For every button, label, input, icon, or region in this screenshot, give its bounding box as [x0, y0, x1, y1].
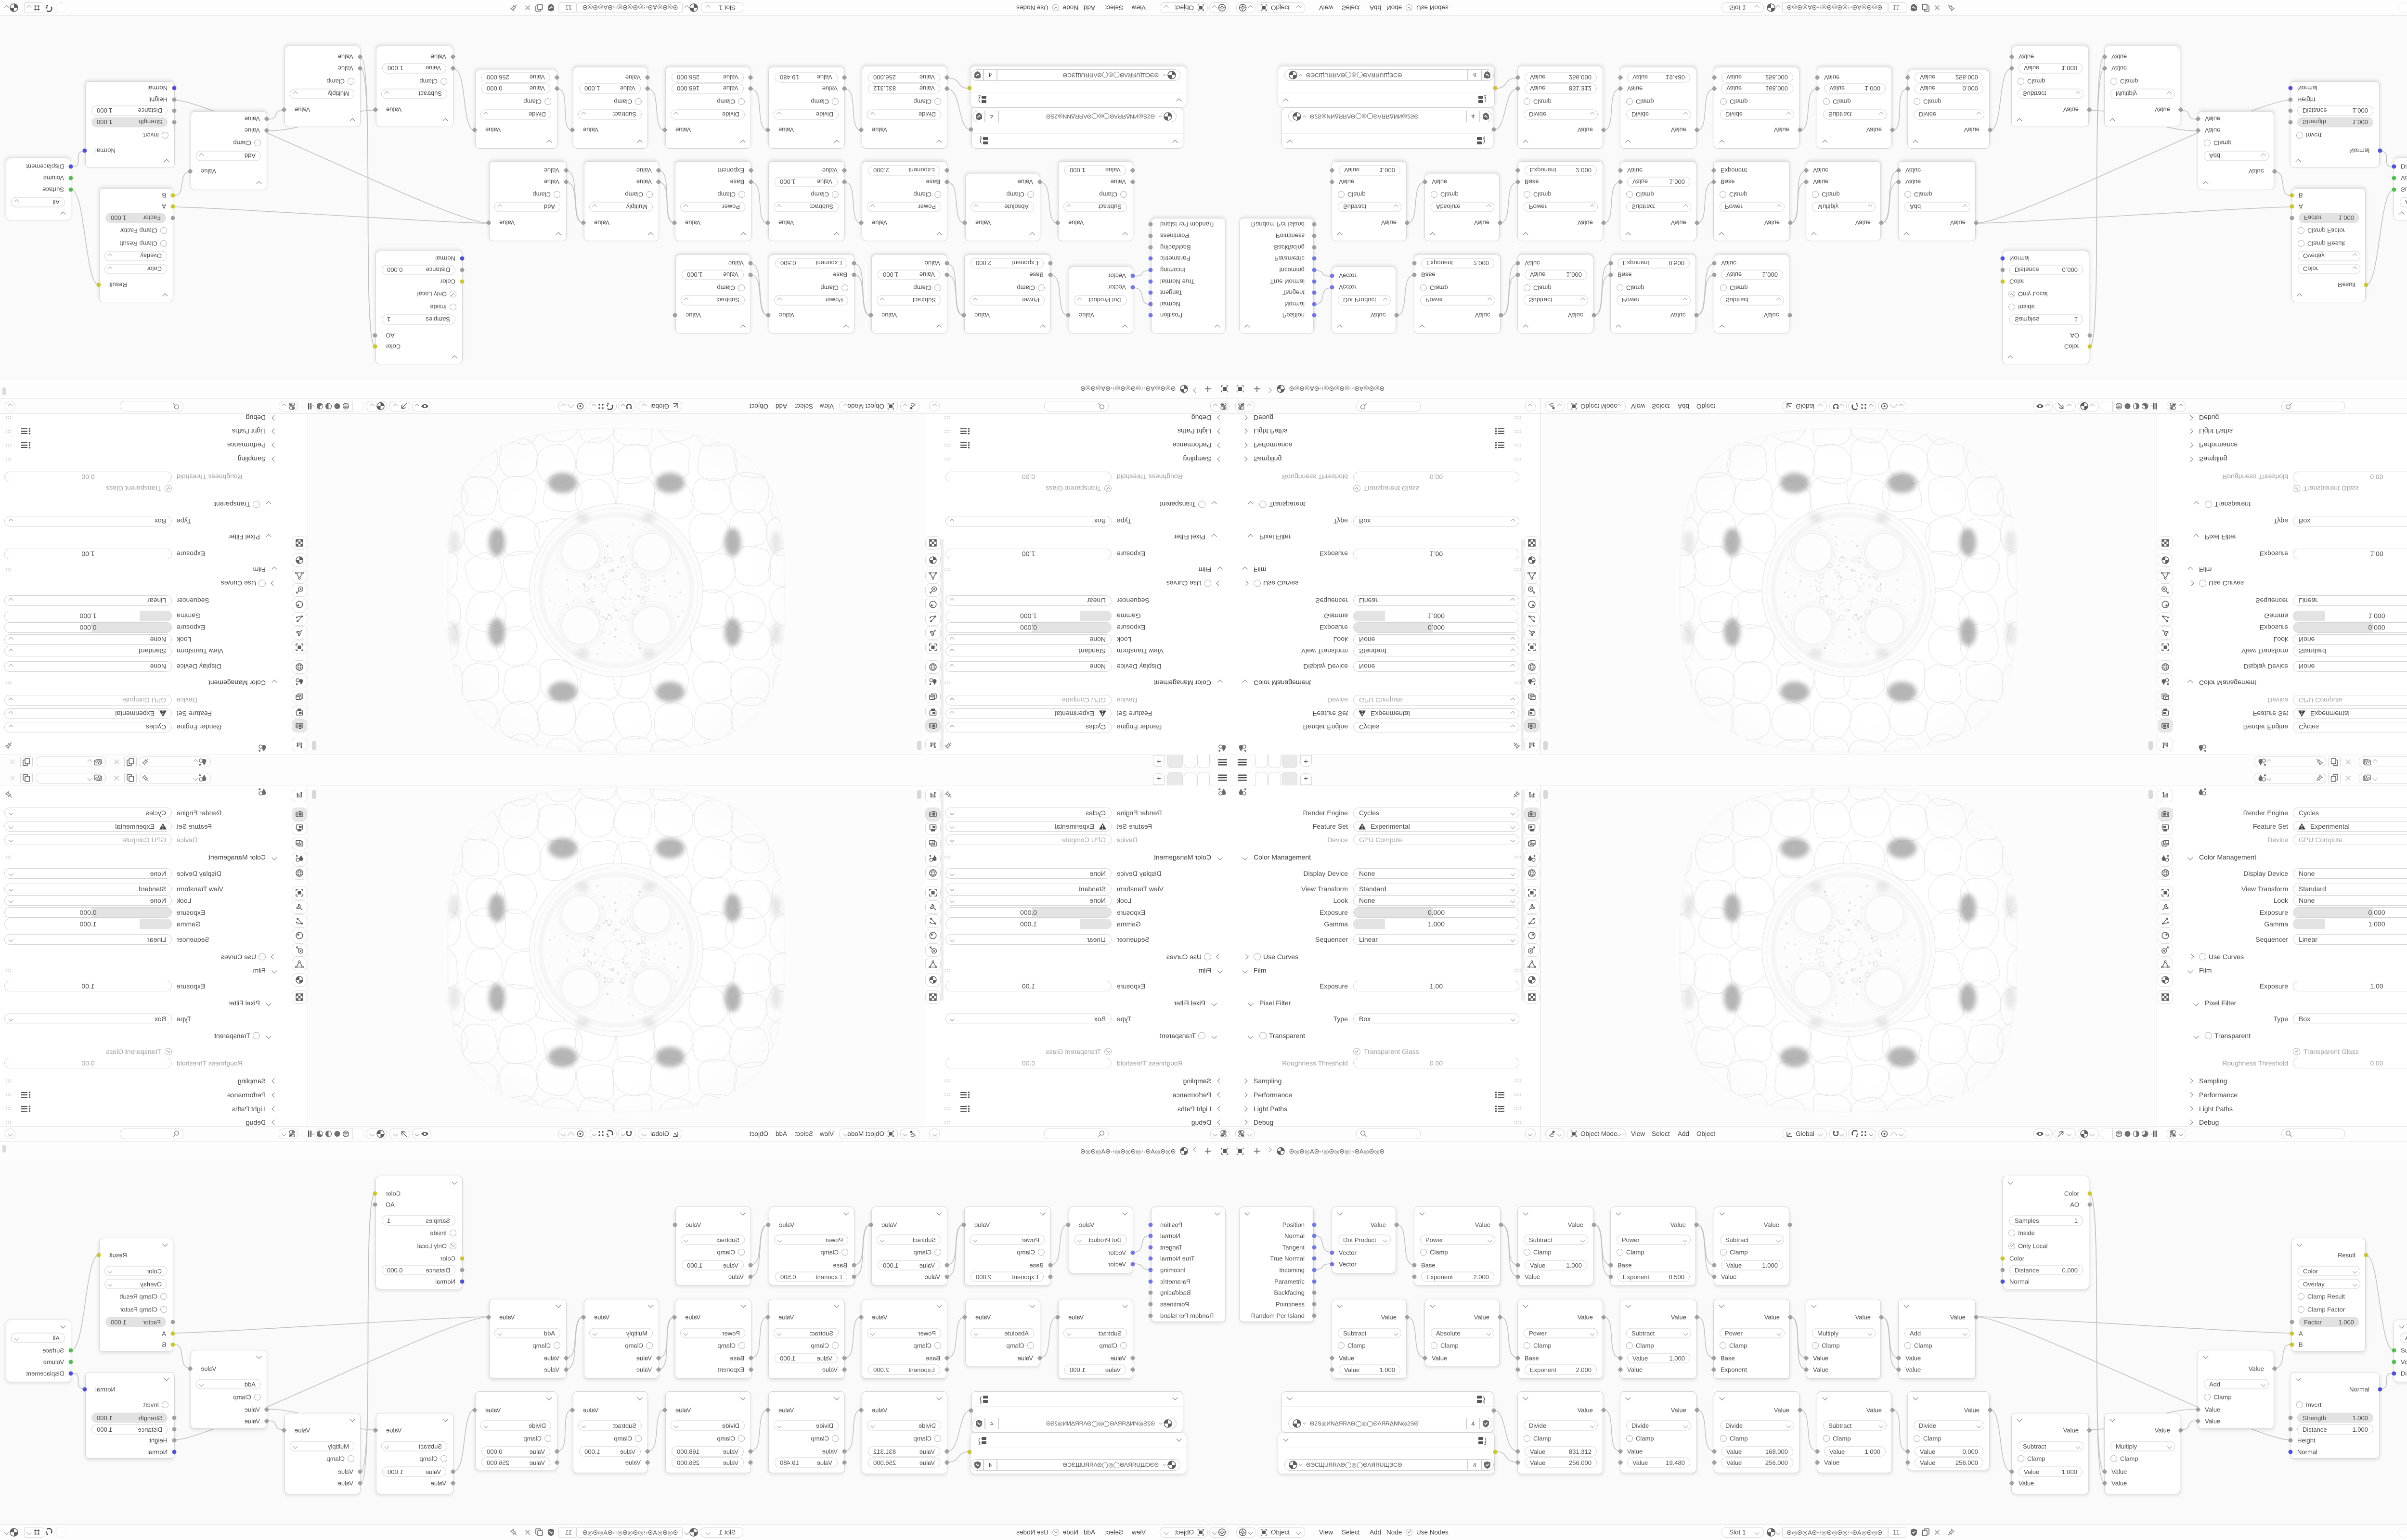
svg-text:4: 4	[1484, 94, 1487, 98]
svg-text:4: 4	[980, 136, 982, 140]
svg-text:4: 4	[978, 1442, 981, 1446]
svg-text:4: 4	[1483, 1400, 1485, 1404]
svg-text:4: 4	[978, 94, 981, 98]
svg-text:4: 4	[1484, 1442, 1487, 1446]
svg-text:4: 4	[1483, 136, 1485, 140]
svg-text:4: 4	[980, 1400, 982, 1404]
